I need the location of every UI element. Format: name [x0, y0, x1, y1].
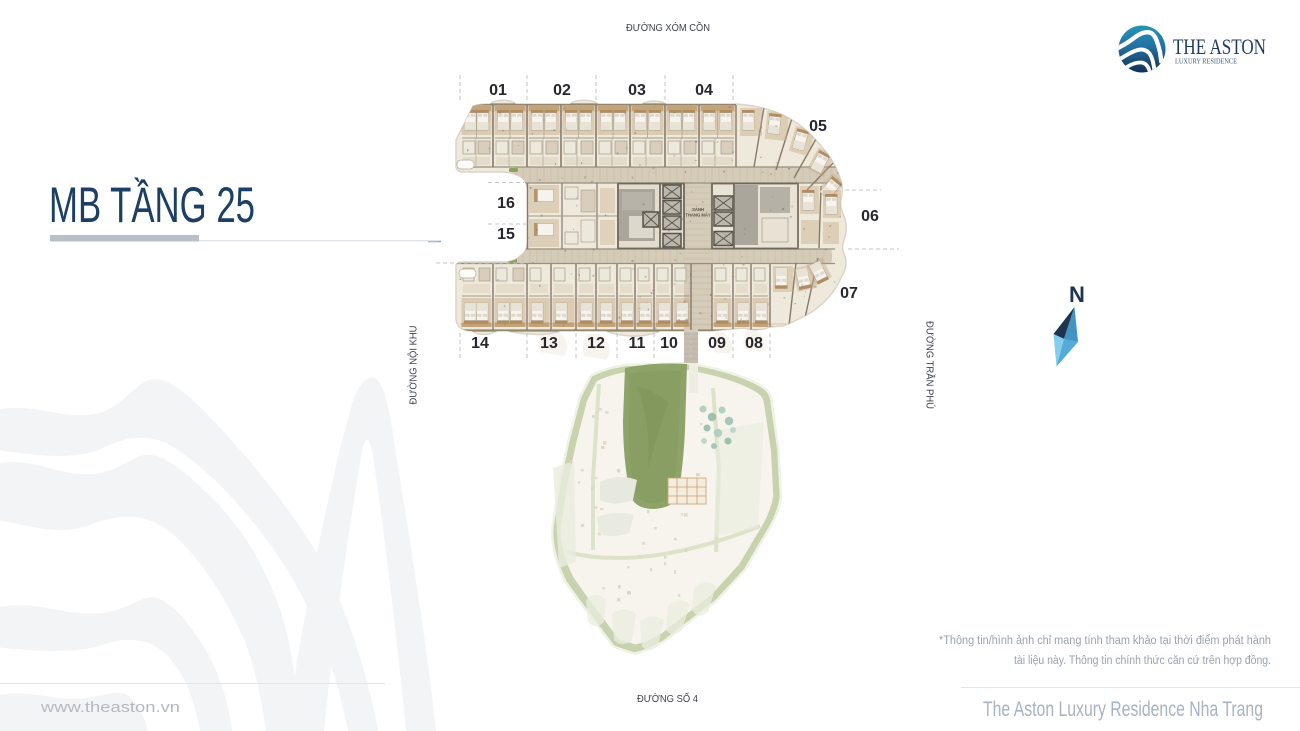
svg-text:THE ASTON: THE ASTON: [1173, 34, 1266, 59]
svg-text:THANG MÁY: THANG MÁY: [685, 213, 711, 218]
svg-text:06: 06: [861, 208, 879, 225]
svg-text:09: 09: [708, 335, 726, 352]
svg-text:*Thông tin/hình ảnh chỉ mang t: *Thông tin/hình ảnh chỉ mang tính tham k…: [939, 635, 1271, 647]
svg-text:tài liệu này. Thông tin chính: tài liệu này. Thông tin chính thức căn c…: [1014, 655, 1271, 667]
svg-text:03: 03: [628, 82, 646, 99]
svg-text:www.theaston.vn: www.theaston.vn: [40, 699, 180, 716]
svg-text:LUXURY RESIDENCE: LUXURY RESIDENCE: [1175, 57, 1237, 66]
svg-text:SẢNH: SẢNH: [692, 207, 704, 212]
svg-text:ĐƯỜNG SỐ 4: ĐƯỜNG SỐ 4: [637, 691, 698, 705]
svg-text:02: 02: [553, 82, 571, 99]
svg-text:07: 07: [840, 285, 858, 302]
svg-text:MB TẦNG 25: MB TẦNG 25: [49, 177, 255, 233]
svg-text:05: 05: [809, 118, 827, 135]
svg-text:16: 16: [497, 195, 515, 212]
svg-text:13: 13: [540, 335, 558, 352]
svg-text:10: 10: [660, 335, 678, 352]
svg-text:ĐƯỜNG NỘI KHU: ĐƯỜNG NỘI KHU: [407, 326, 420, 405]
svg-text:N: N: [1069, 282, 1085, 307]
svg-text:14: 14: [471, 335, 489, 352]
svg-text:11: 11: [629, 335, 646, 352]
svg-text:04: 04: [695, 82, 713, 99]
svg-text:08: 08: [745, 335, 763, 352]
svg-text:15: 15: [497, 226, 515, 243]
svg-text:The Aston Luxury Residence Nha: The Aston Luxury Residence Nha Trang: [983, 698, 1263, 721]
svg-text:01: 01: [489, 82, 507, 99]
svg-text:12: 12: [587, 335, 605, 352]
svg-text:ĐƯỜNG XÓM CỒN: ĐƯỜNG XÓM CỒN: [626, 21, 710, 34]
svg-text:ĐƯỜNG TRẦN PHÚ: ĐƯỜNG TRẦN PHÚ: [924, 321, 937, 409]
